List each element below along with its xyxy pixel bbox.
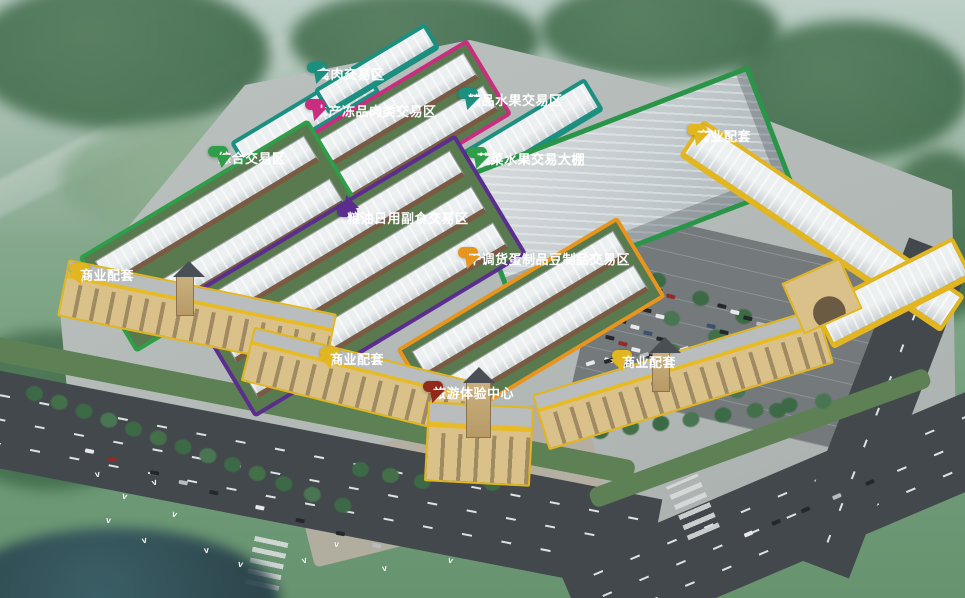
label-text: 粮油日用副食交易区 [347, 212, 469, 225]
bird-icon: v [105, 516, 111, 526]
label-text: 精品水果交易区 [468, 94, 563, 107]
label-text: 蔬菜水果交易大棚 [477, 153, 585, 166]
bird-icon: v [447, 555, 454, 565]
label-text: 商业配套 [697, 130, 751, 143]
label-seafood-frozen-meat-zone: 水产冻品肉类交易区 [305, 99, 325, 110]
label-text: 旅游体验中心 [433, 387, 514, 400]
label-text: 商业配套 [622, 356, 676, 369]
label-text: 干调货蛋制品豆制品交易区 [468, 253, 630, 266]
label-text: 商业配套 [80, 269, 134, 282]
bird-icon: v [334, 540, 340, 549]
street-trees [352, 462, 369, 477]
bird-icon: v [121, 492, 128, 502]
label-text: 禽肉交易区 [317, 68, 385, 81]
label-text: 商业配套 [330, 353, 384, 366]
label-dry-seasoning-egg-bean-zone: 干调货蛋制品豆制品交易区 [458, 247, 478, 258]
label-premium-fruit-zone: 精品水果交易区 [458, 88, 478, 99]
label-vegetable-fruit-shed: 蔬菜水果交易大棚 [467, 147, 487, 158]
label-poultry-zone: 禽肉交易区 [307, 62, 327, 73]
label-commercial-support-west: 商业配套 [70, 263, 90, 274]
aerial-site-plan: v v v v v v v v v v v v 禽肉交易区 水产冻品肉类交易区 … [0, 0, 965, 598]
bird-icon: v [381, 564, 388, 574]
label-commercial-support-southeast: 商业配套 [612, 350, 632, 361]
bird-icon: v [301, 555, 309, 565]
label-text: 综合交易区 [218, 152, 286, 165]
bird-icon: v [171, 509, 179, 519]
label-tourism-experience-center: 旅游体验中心 [423, 381, 443, 392]
label-commercial-support-northeast: 商业配套 [687, 124, 707, 135]
label-commercial-support-south: 商业配套 [320, 347, 340, 358]
label-general-trading-zone: 综合交易区 [208, 146, 228, 157]
gable-tower [176, 276, 194, 316]
label-grain-oil-daily-food-zone: 粮油日用副食交易区 [337, 206, 357, 217]
label-text: 水产冻品肉类交易区 [315, 105, 437, 118]
bird-icon: v [204, 546, 210, 555]
